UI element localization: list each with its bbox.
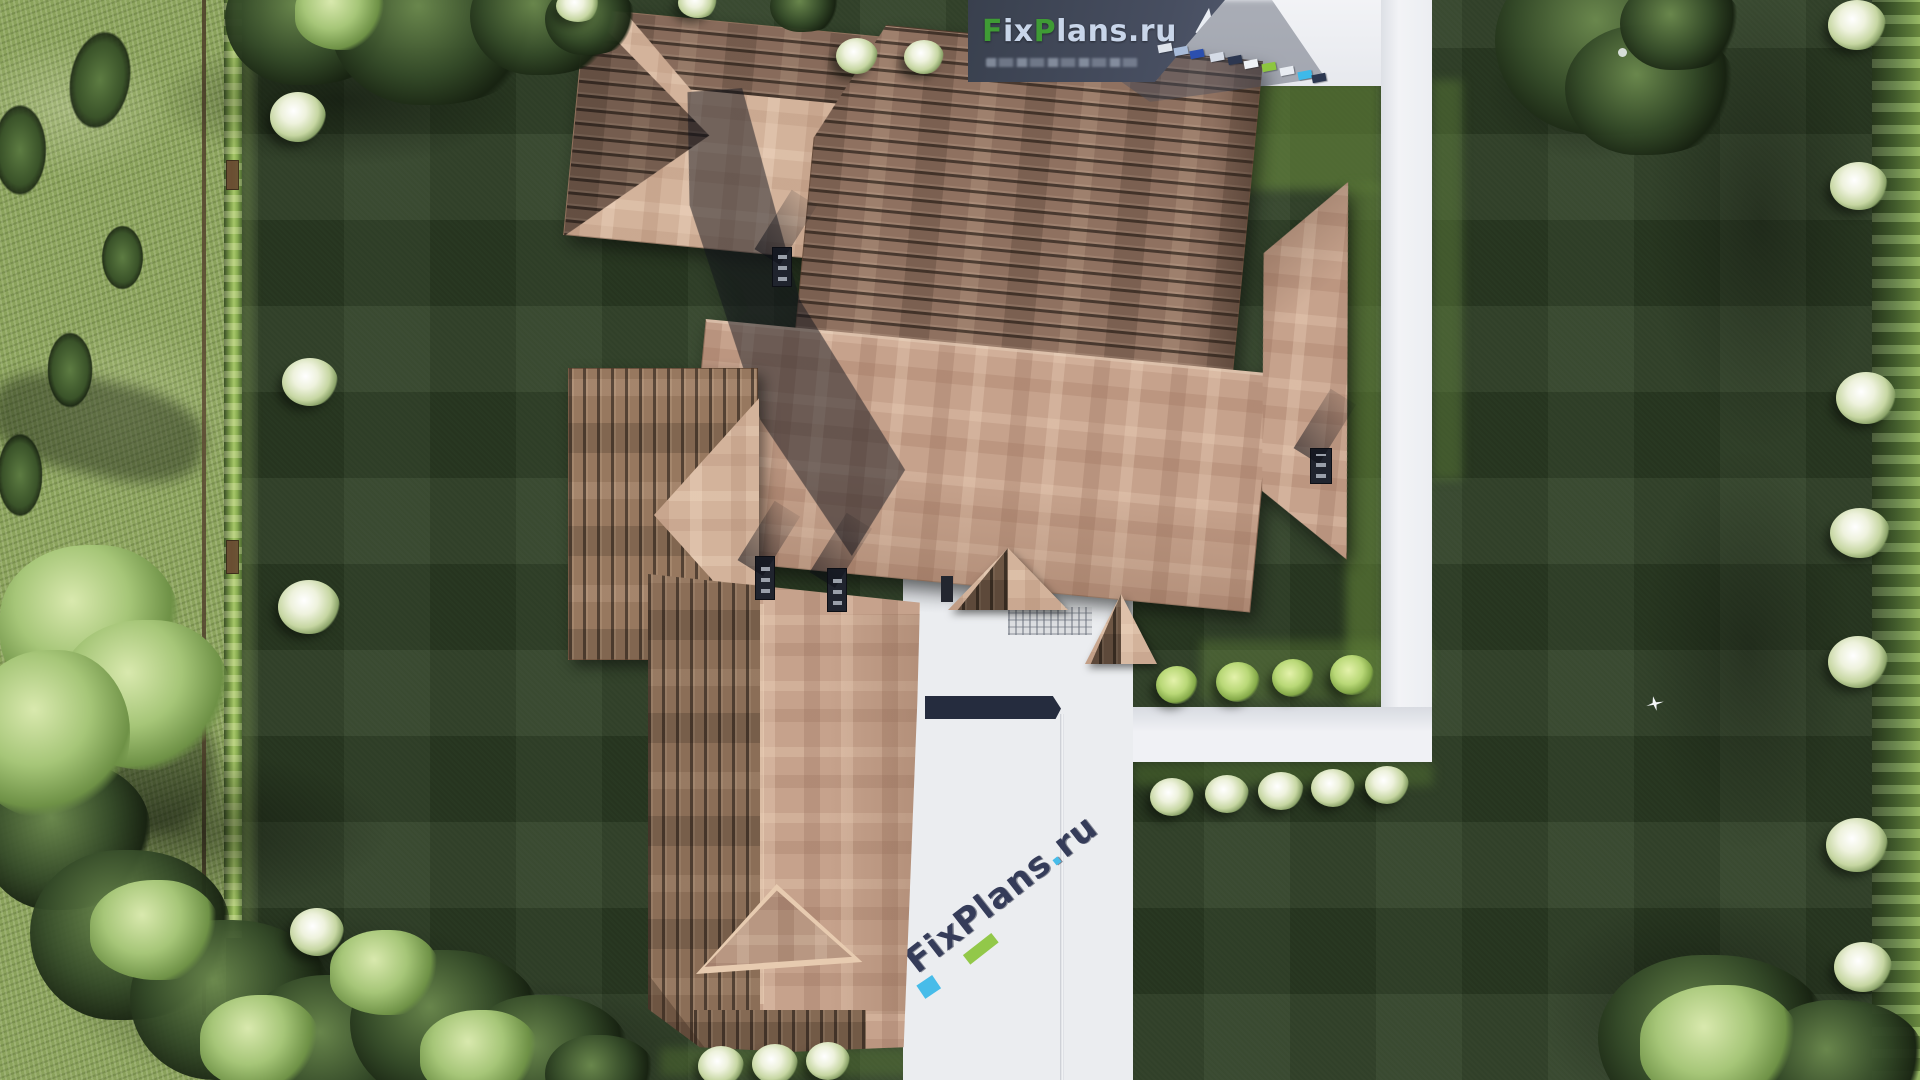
sunlit-lawn: [1432, 80, 1462, 480]
aerial-site-render: FixPlans.ru: [0, 0, 1920, 1080]
logo-tagline-blurred: [986, 58, 1138, 67]
white-flowering-bush: [678, 0, 718, 18]
white-flowering-bush: [1205, 775, 1249, 813]
green-bush: [1216, 662, 1260, 702]
white-flowering-bush: [1828, 636, 1888, 688]
sunlit-tree-canopy: [90, 880, 220, 980]
conifer-tree: [95, 215, 150, 300]
white-flowering-bush: [282, 358, 338, 406]
white-flowering-bush: [1828, 0, 1886, 50]
white-flowering-bush: [290, 908, 344, 956]
sunlit-tree-canopy: [200, 995, 320, 1080]
fixplans-logo: FixPlans.ru: [982, 14, 1177, 49]
white-flowering-bush: [1258, 772, 1304, 810]
small-white-bird: [1618, 48, 1627, 57]
green-bush: [1330, 655, 1374, 695]
sunlit-tree-canopy: [1640, 985, 1800, 1080]
hedge-gate-post: [226, 160, 239, 190]
conifer-tree: [40, 320, 100, 420]
boundary-hedge-left: [224, 0, 242, 938]
white-flowering-bush: [752, 1044, 798, 1080]
white-flowering-bush: [904, 40, 944, 74]
green-bush: [1272, 659, 1314, 697]
sunlit-tree-canopy: [420, 1010, 540, 1080]
dormer-roof: [1085, 594, 1157, 664]
white-flowering-bush: [698, 1046, 744, 1080]
roof-west-slope: [648, 574, 760, 1052]
roof-wing-south: [648, 574, 920, 1052]
white-flowering-bush: [836, 38, 878, 74]
green-bush: [1156, 666, 1198, 704]
chimney: [772, 247, 792, 287]
white-flowering-bush: [270, 92, 326, 142]
hedge-gate-post: [226, 540, 239, 574]
sunlit-tree-canopy: [330, 930, 440, 1015]
sunlit-lawn: [242, 0, 252, 930]
white-flowering-bush: [806, 1042, 850, 1080]
white-flowering-bush: [1834, 942, 1892, 992]
chimney: [827, 568, 847, 612]
white-flowering-bush: [1830, 508, 1890, 558]
roof-vent: [941, 576, 953, 602]
white-flowering-bush: [1830, 162, 1888, 210]
white-flowering-bush: [278, 580, 340, 634]
chimney: [755, 556, 775, 600]
white-flowering-bush: [1365, 766, 1409, 804]
boundary-fence: [202, 0, 206, 1015]
flying-bird: [1644, 694, 1666, 714]
white-flowering-bush: [1826, 818, 1888, 872]
white-flowering-bush: [1311, 769, 1355, 807]
white-flowering-bush: [1836, 372, 1896, 424]
chimney: [1310, 448, 1332, 484]
white-flowering-bush: [1150, 778, 1194, 816]
dormer-roof: [948, 548, 1068, 610]
